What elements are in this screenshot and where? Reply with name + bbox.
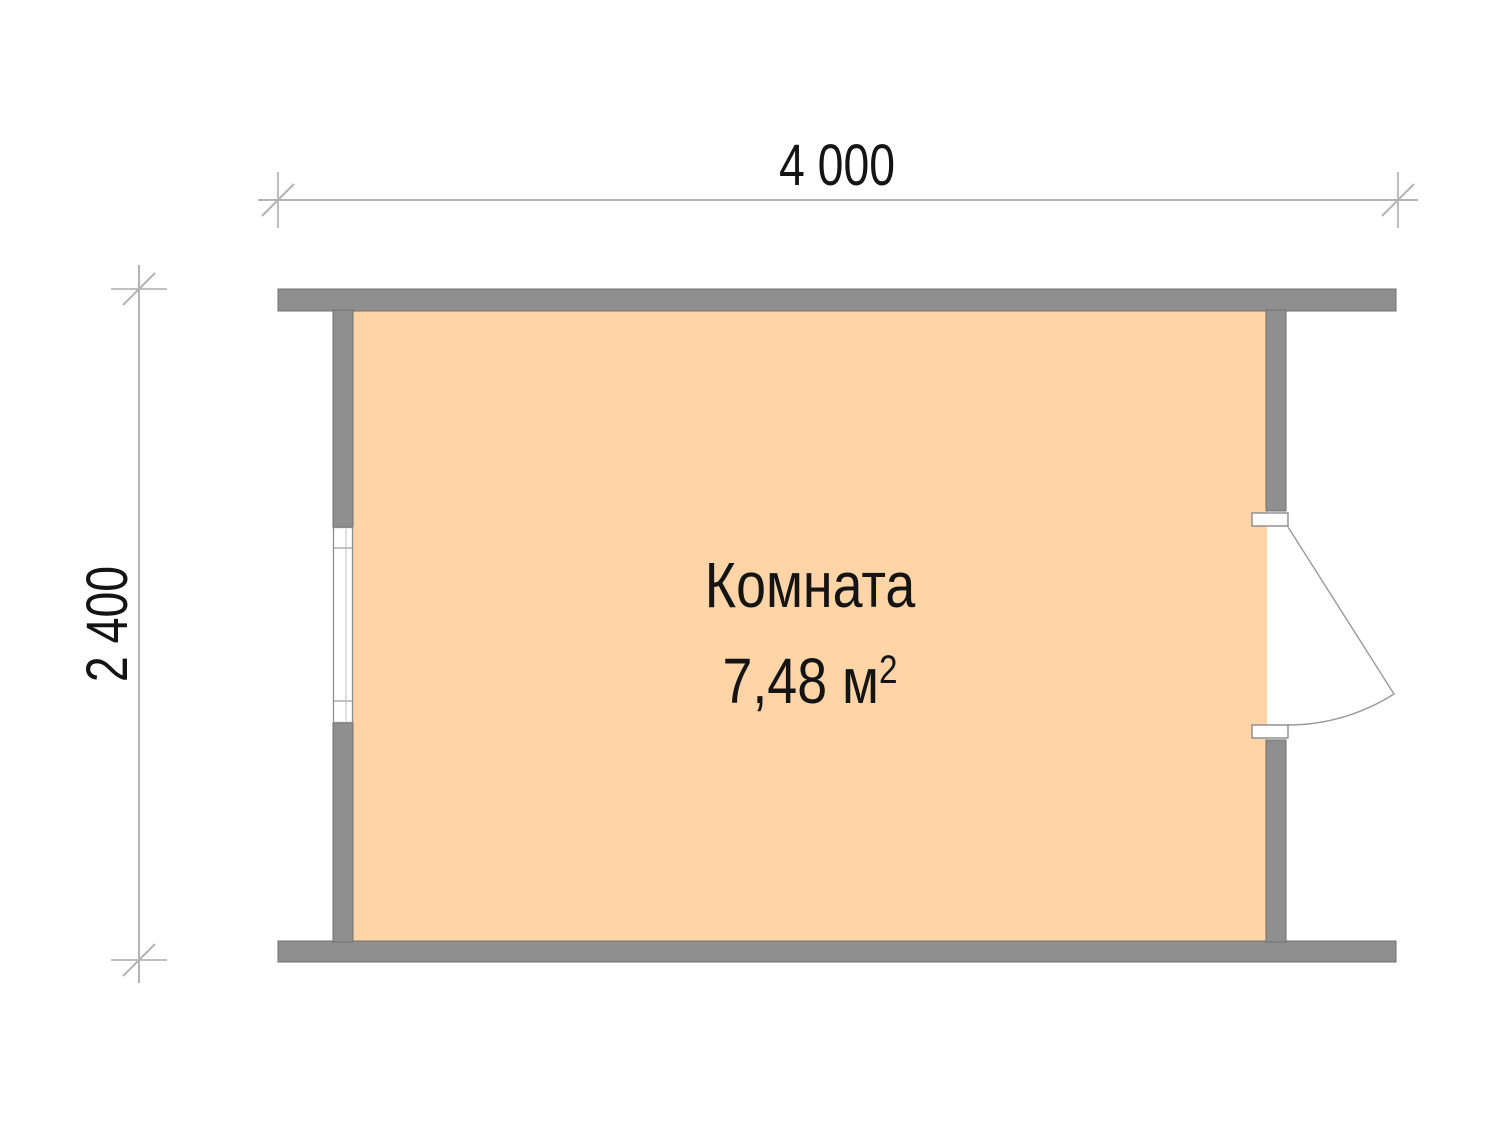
- floor-plan: 4 000 2 400 Комната 7,48 м2: [0, 0, 1500, 1125]
- dimension-width-label: 4 000: [677, 140, 997, 192]
- dimension-height-label: 2 400: [75, 464, 141, 784]
- window-symbol: [334, 528, 353, 723]
- room-name-label: Комната: [426, 552, 1194, 618]
- door-jamb-top: [1252, 513, 1288, 526]
- room-area-exponent: 2: [879, 648, 898, 692]
- room-area-value: 7,48 м: [722, 645, 879, 717]
- room-floor: [352, 310, 1267, 942]
- wall-left-lower: [333, 723, 353, 942]
- wall-right-lower: [1266, 740, 1286, 942]
- wall-top: [278, 289, 1396, 311]
- door-jamb-bottom: [1252, 725, 1288, 738]
- room-area-label: 7,48 м2: [426, 637, 1194, 703]
- wall-left-upper: [333, 310, 353, 527]
- window-frame: [334, 528, 353, 723]
- door-swing-symbol: [1288, 527, 1394, 725]
- wall-right-upper: [1266, 310, 1286, 511]
- wall-bottom: [278, 941, 1396, 962]
